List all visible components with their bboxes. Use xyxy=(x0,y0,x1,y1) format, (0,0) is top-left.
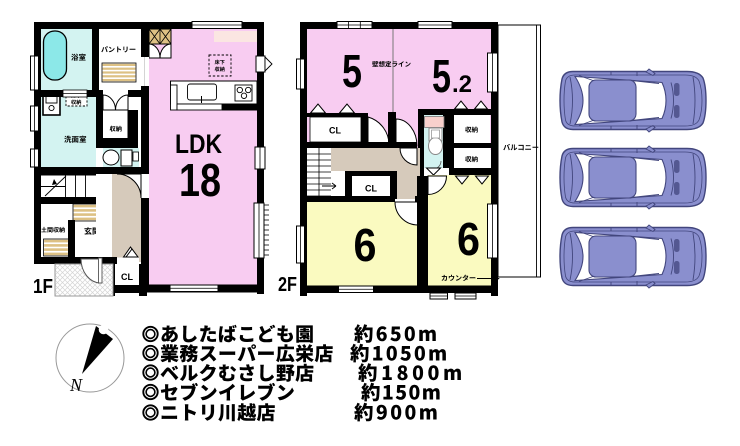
svg-text:18: 18 xyxy=(179,154,221,206)
svg-text:CL: CL xyxy=(121,272,133,282)
svg-text:5: 5 xyxy=(342,45,362,97)
svg-text:1F: 1F xyxy=(33,276,53,298)
svg-text:2F: 2F xyxy=(278,274,297,296)
svg-text:6: 6 xyxy=(457,213,480,265)
svg-text:N: N xyxy=(69,375,83,395)
svg-text:CL: CL xyxy=(365,184,377,194)
svg-text:CL: CL xyxy=(329,126,341,136)
svg-text:.2: .2 xyxy=(452,71,472,98)
svg-text:6: 6 xyxy=(354,219,377,271)
svg-text:5: 5 xyxy=(432,50,451,102)
